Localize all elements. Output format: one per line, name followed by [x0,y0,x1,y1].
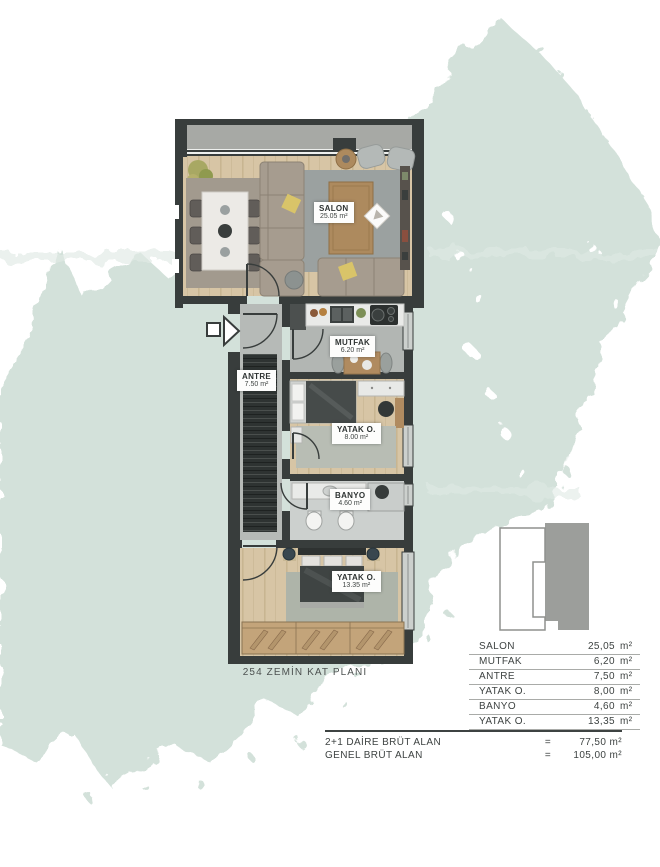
room-area: 6.20 m² [335,347,370,355]
wall-niche [172,205,179,219]
room-area: 7.50 m² [242,381,271,389]
table-row: YATAK O. 8,00 m² [469,685,640,700]
room-label-yatak2: YATAK O. 13.35 m² [332,571,381,592]
table-row: YATAK O. 13,35 m² [469,715,640,730]
summary-label: GENEL BRÜT ALAN [325,750,423,763]
fridge [290,304,306,330]
row-label: ANTRE [479,671,515,682]
summary-row: GENEL BRÜT ALAN = 105,00 m² [325,750,622,763]
row-unit: m² [620,701,640,712]
lamp [367,548,379,560]
room-area: 13.35 m² [337,582,376,590]
table-row: ANTRE 7,50 m² [469,670,640,685]
wardrobe-large [242,622,404,654]
row-unit: m² [620,716,640,727]
room-name: BANYO [335,491,365,500]
row-value: 4,60 [594,701,615,712]
plan-caption: 254 ZEMİN KAT PLANI [220,667,390,678]
equals-sign: = [540,750,556,763]
room-area: 8.00 m² [337,434,376,442]
row-unit: m² [620,686,640,697]
row-value: 25,05 [588,641,615,652]
lamp [283,548,295,560]
row-label: MUTFAK [479,656,522,667]
pouf [285,271,303,289]
table-row: BANYO 4,60 m² [469,700,640,715]
room-label-banyo: BANYO 4.60 m² [330,489,370,510]
area-table: SALON 25,05 m² MUTFAK 6,20 m² ANTRE 7,50… [469,640,640,730]
row-label: SALON [479,641,515,652]
key-plan-highlighted-unit [545,523,589,630]
room-name: SALON [319,204,349,213]
tv-console [400,166,410,270]
row-unit: m² [620,656,640,667]
wardrobe-small [358,381,404,396]
room-name: YATAK O. [337,425,376,434]
page: SALON 25.05 m² MUTFAK 6.20 m² ANTRE 7.50… [0,0,660,867]
kitchen-chair [380,353,392,373]
wall-niche [172,259,179,273]
row-unit: m² [620,671,640,682]
row-label: BANYO [479,701,516,712]
desk-chair [378,401,394,417]
key-plan-building-outline [500,528,545,630]
room-name: YATAK O. [337,573,376,582]
room-label-salon: SALON 25.05 m² [314,202,354,223]
area-summary: 2+1 DAİRE BRÜT ALAN = 77,50 m² GENEL BRÜ… [325,730,622,762]
summary-row: 2+1 DAİRE BRÜT ALAN = 77,50 m² [325,737,622,750]
room-label-mutfak: MUTFAK 6.20 m² [330,336,375,357]
summary-value: 77,50 m² [556,737,622,750]
row-value: 7,50 [594,671,615,682]
row-label: YATAK O. [479,686,526,697]
kitchen-sink [330,306,354,323]
row-label: YATAK O. [479,716,526,727]
table-row: SALON 25,05 m² [469,640,640,655]
desk [395,398,404,428]
shower-head [375,485,389,499]
equals-sign: = [540,737,556,750]
table-row: MUTFAK 6,20 m² [469,655,640,670]
row-value: 8,00 [594,686,615,697]
bidet [338,511,354,530]
room-name: ANTRE [242,372,271,381]
stove [370,305,398,325]
key-plan-icon [500,523,589,630]
row-value: 6,20 [594,656,615,667]
room-label-antre: ANTRE 7.50 m² [237,370,276,391]
room-area: 25.05 m² [319,213,349,221]
sofa [318,258,404,296]
summary-value: 105,00 m² [556,750,622,763]
room-area: 4.60 m² [335,500,365,508]
toilet [306,511,322,530]
row-unit: m² [620,641,640,652]
room-name: MUTFAK [335,338,370,347]
room-label-yatak1: YATAK O. 8.00 m² [332,423,381,444]
summary-label: 2+1 DAİRE BRÜT ALAN [325,737,441,750]
row-value: 13,35 [588,716,615,727]
